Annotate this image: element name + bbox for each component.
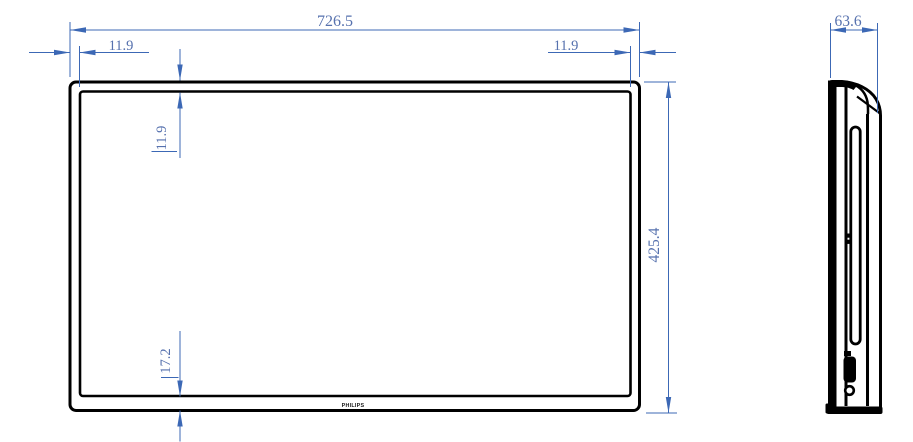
side-control-block bbox=[844, 357, 857, 383]
arrow-bezel-top-down bbox=[177, 65, 182, 81]
drawing-svg: PHILIPS bbox=[0, 0, 913, 442]
side-vent-slot bbox=[851, 127, 860, 344]
arrow-bezel-right-a bbox=[615, 50, 631, 55]
brand-logo: PHILIPS bbox=[342, 403, 365, 409]
arrow-height-top bbox=[666, 82, 671, 98]
arrow-width-right bbox=[624, 27, 640, 32]
dimension-drawing-canvas: PHILIPS bbox=[0, 0, 913, 442]
side-foot-notch bbox=[826, 404, 831, 414]
label-overall-width: 726.5 bbox=[317, 13, 353, 30]
arrow-height-bottom bbox=[666, 397, 671, 413]
arrow-width-left bbox=[70, 27, 86, 32]
label-overall-height: 425.4 bbox=[646, 227, 663, 262]
side-bottom-bar bbox=[827, 407, 883, 415]
label-bezel-right: 11.9 bbox=[554, 38, 579, 54]
side-clip-detail-lower bbox=[847, 240, 851, 244]
label-depth: 63.6 bbox=[834, 13, 861, 30]
side-clip-detail-upper bbox=[847, 234, 851, 238]
arrow-bezel-right-b bbox=[640, 50, 656, 55]
side-front-panel bbox=[828, 81, 837, 411]
label-bezel-bottom: 17.2 bbox=[158, 348, 174, 373]
side-control-tab bbox=[844, 351, 851, 356]
label-bezel-top: 11.9 bbox=[154, 126, 170, 151]
side-control-knob bbox=[845, 386, 854, 395]
arrow-bezel-bottom-up bbox=[177, 411, 182, 427]
arrow-bezel-left-b bbox=[80, 50, 96, 55]
arrow-depth-right bbox=[862, 27, 878, 32]
label-bezel-left: 11.9 bbox=[109, 38, 134, 54]
side-view bbox=[826, 81, 883, 415]
arrow-bezel-left-a bbox=[54, 50, 70, 55]
